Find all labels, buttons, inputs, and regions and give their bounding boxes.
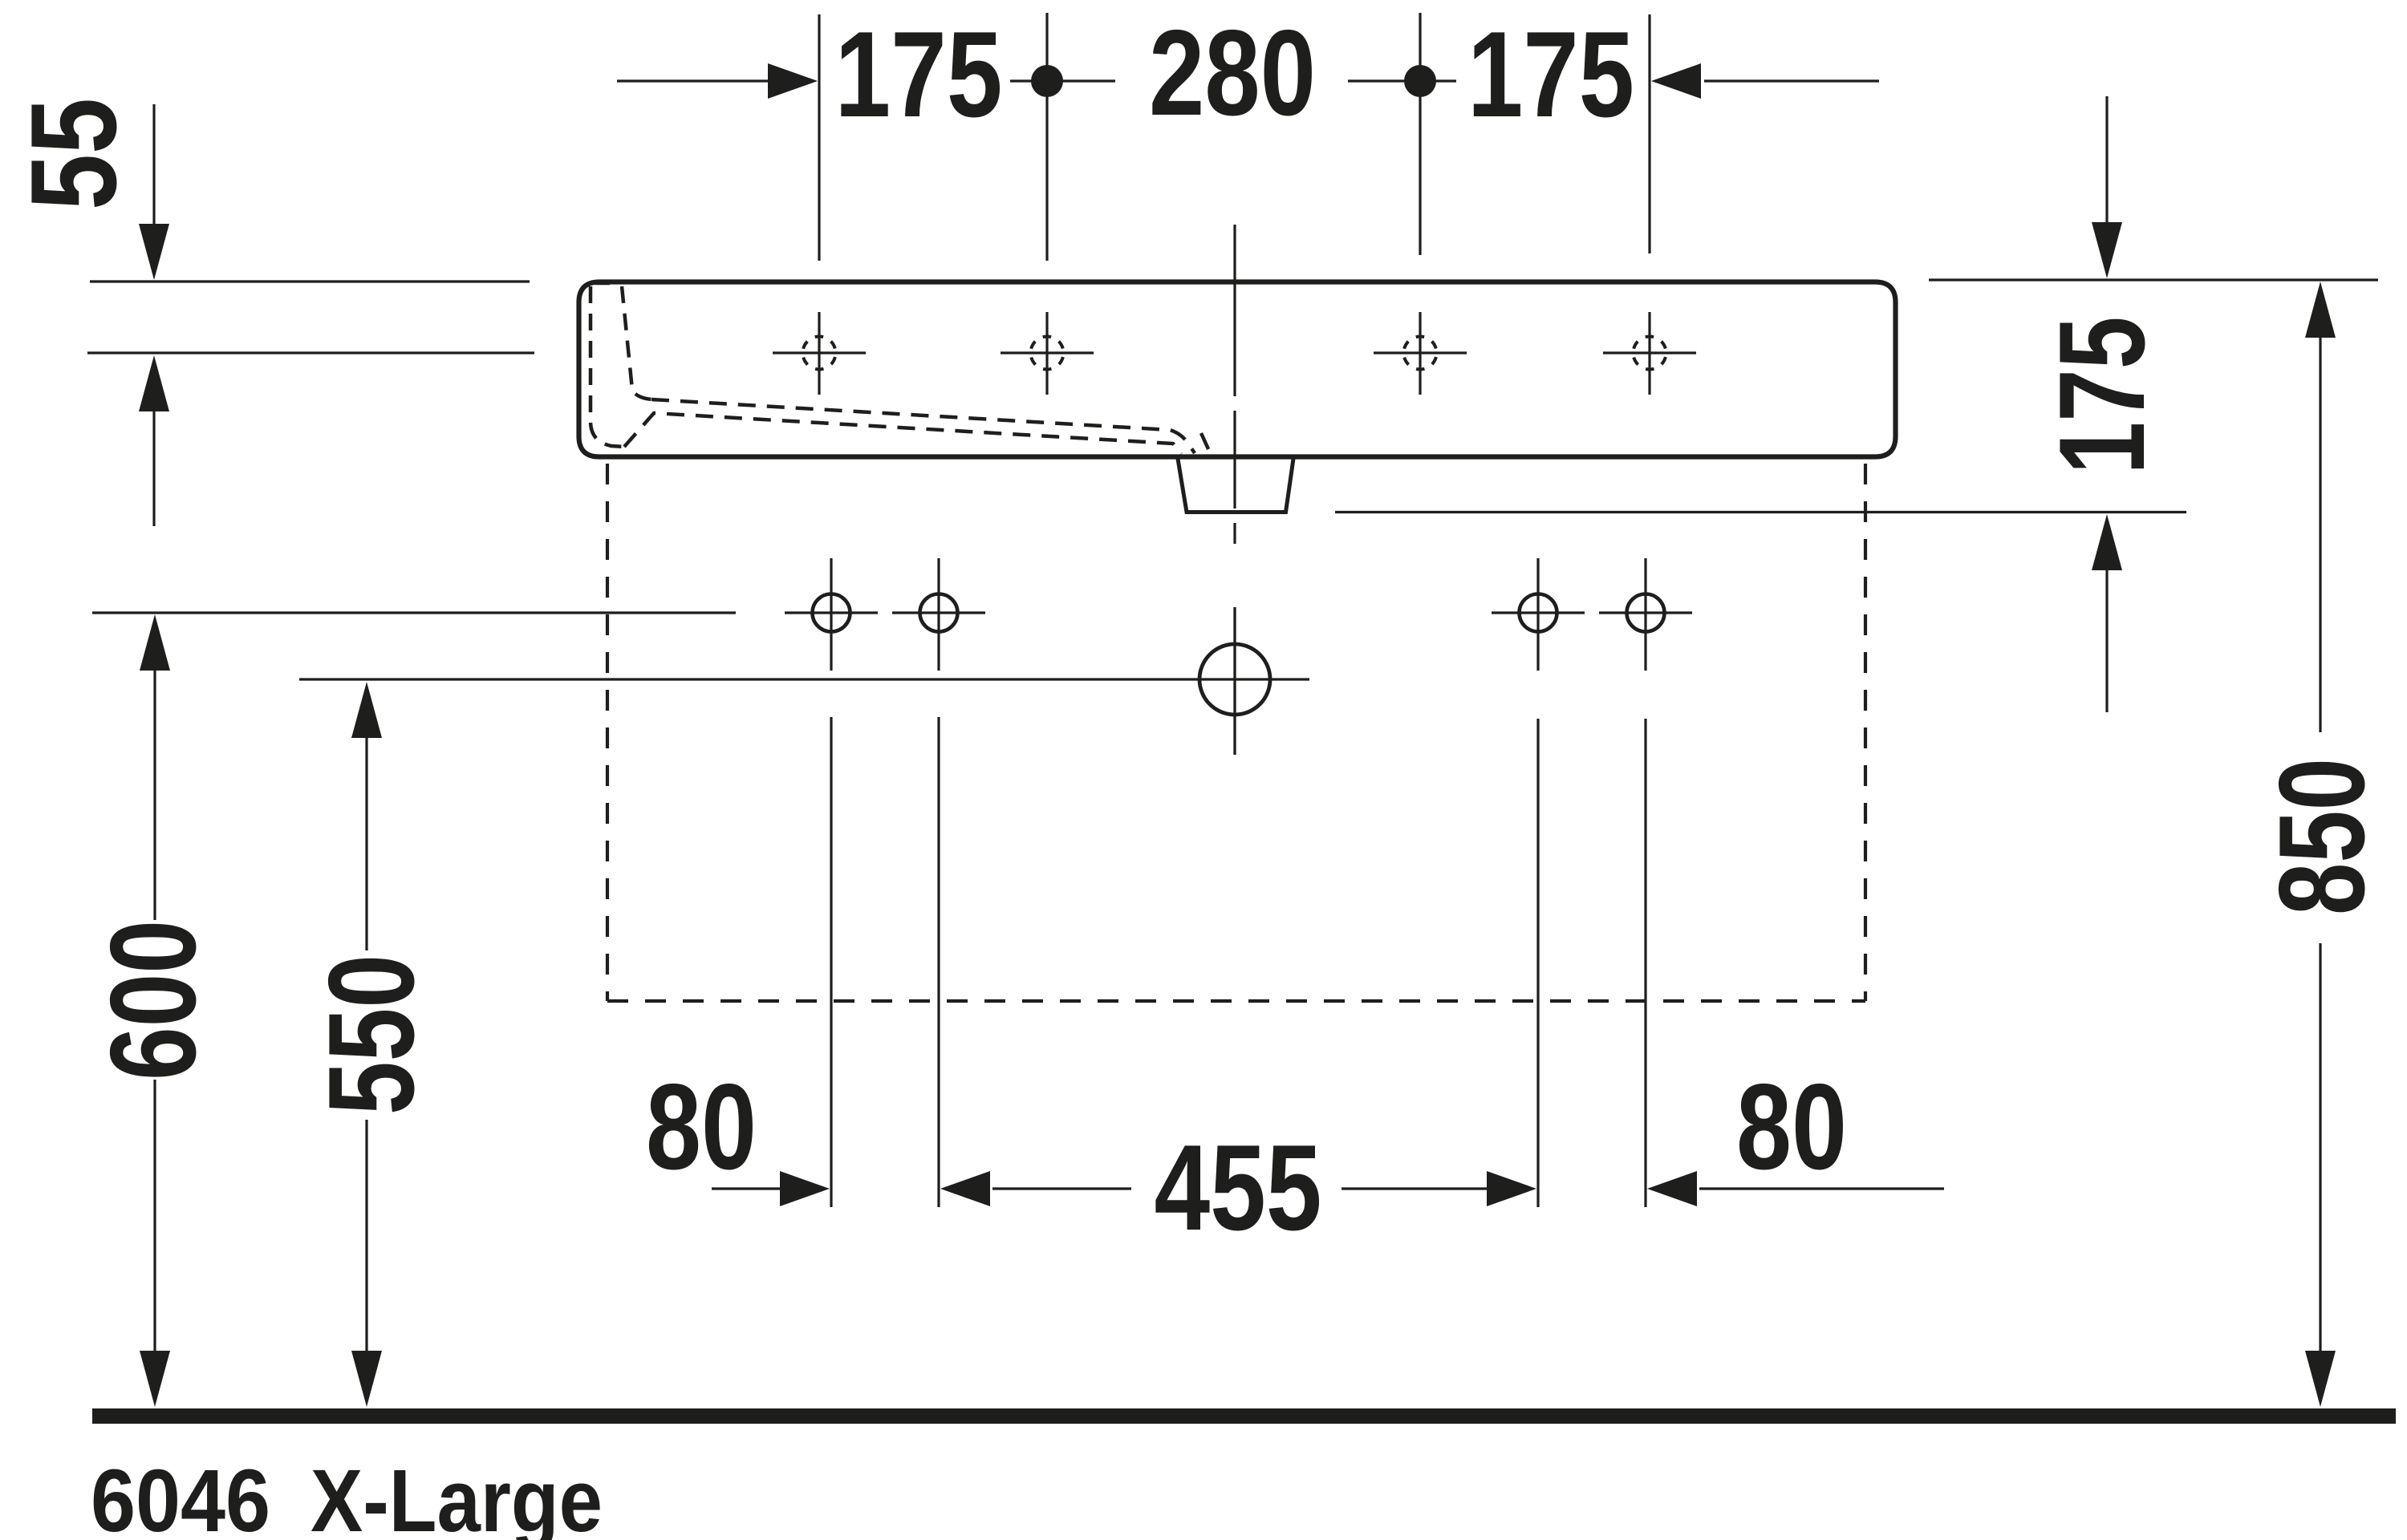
svg-text:600: 600: [85, 920, 221, 1080]
svg-text:175: 175: [1467, 6, 1634, 143]
svg-text:280: 280: [1149, 5, 1316, 141]
svg-text:550: 550: [303, 954, 440, 1115]
svg-text:175: 175: [2034, 317, 2170, 475]
svg-text:X-Large: X-Large: [311, 1452, 603, 1540]
svg-text:80: 80: [646, 1059, 757, 1195]
svg-text:80: 80: [1736, 1059, 1847, 1195]
svg-text:850: 850: [2254, 758, 2390, 915]
svg-text:175: 175: [835, 6, 1003, 143]
svg-text:455: 455: [1155, 1120, 1322, 1256]
svg-text:6046: 6046: [91, 1452, 270, 1540]
svg-text:55: 55: [6, 98, 142, 210]
